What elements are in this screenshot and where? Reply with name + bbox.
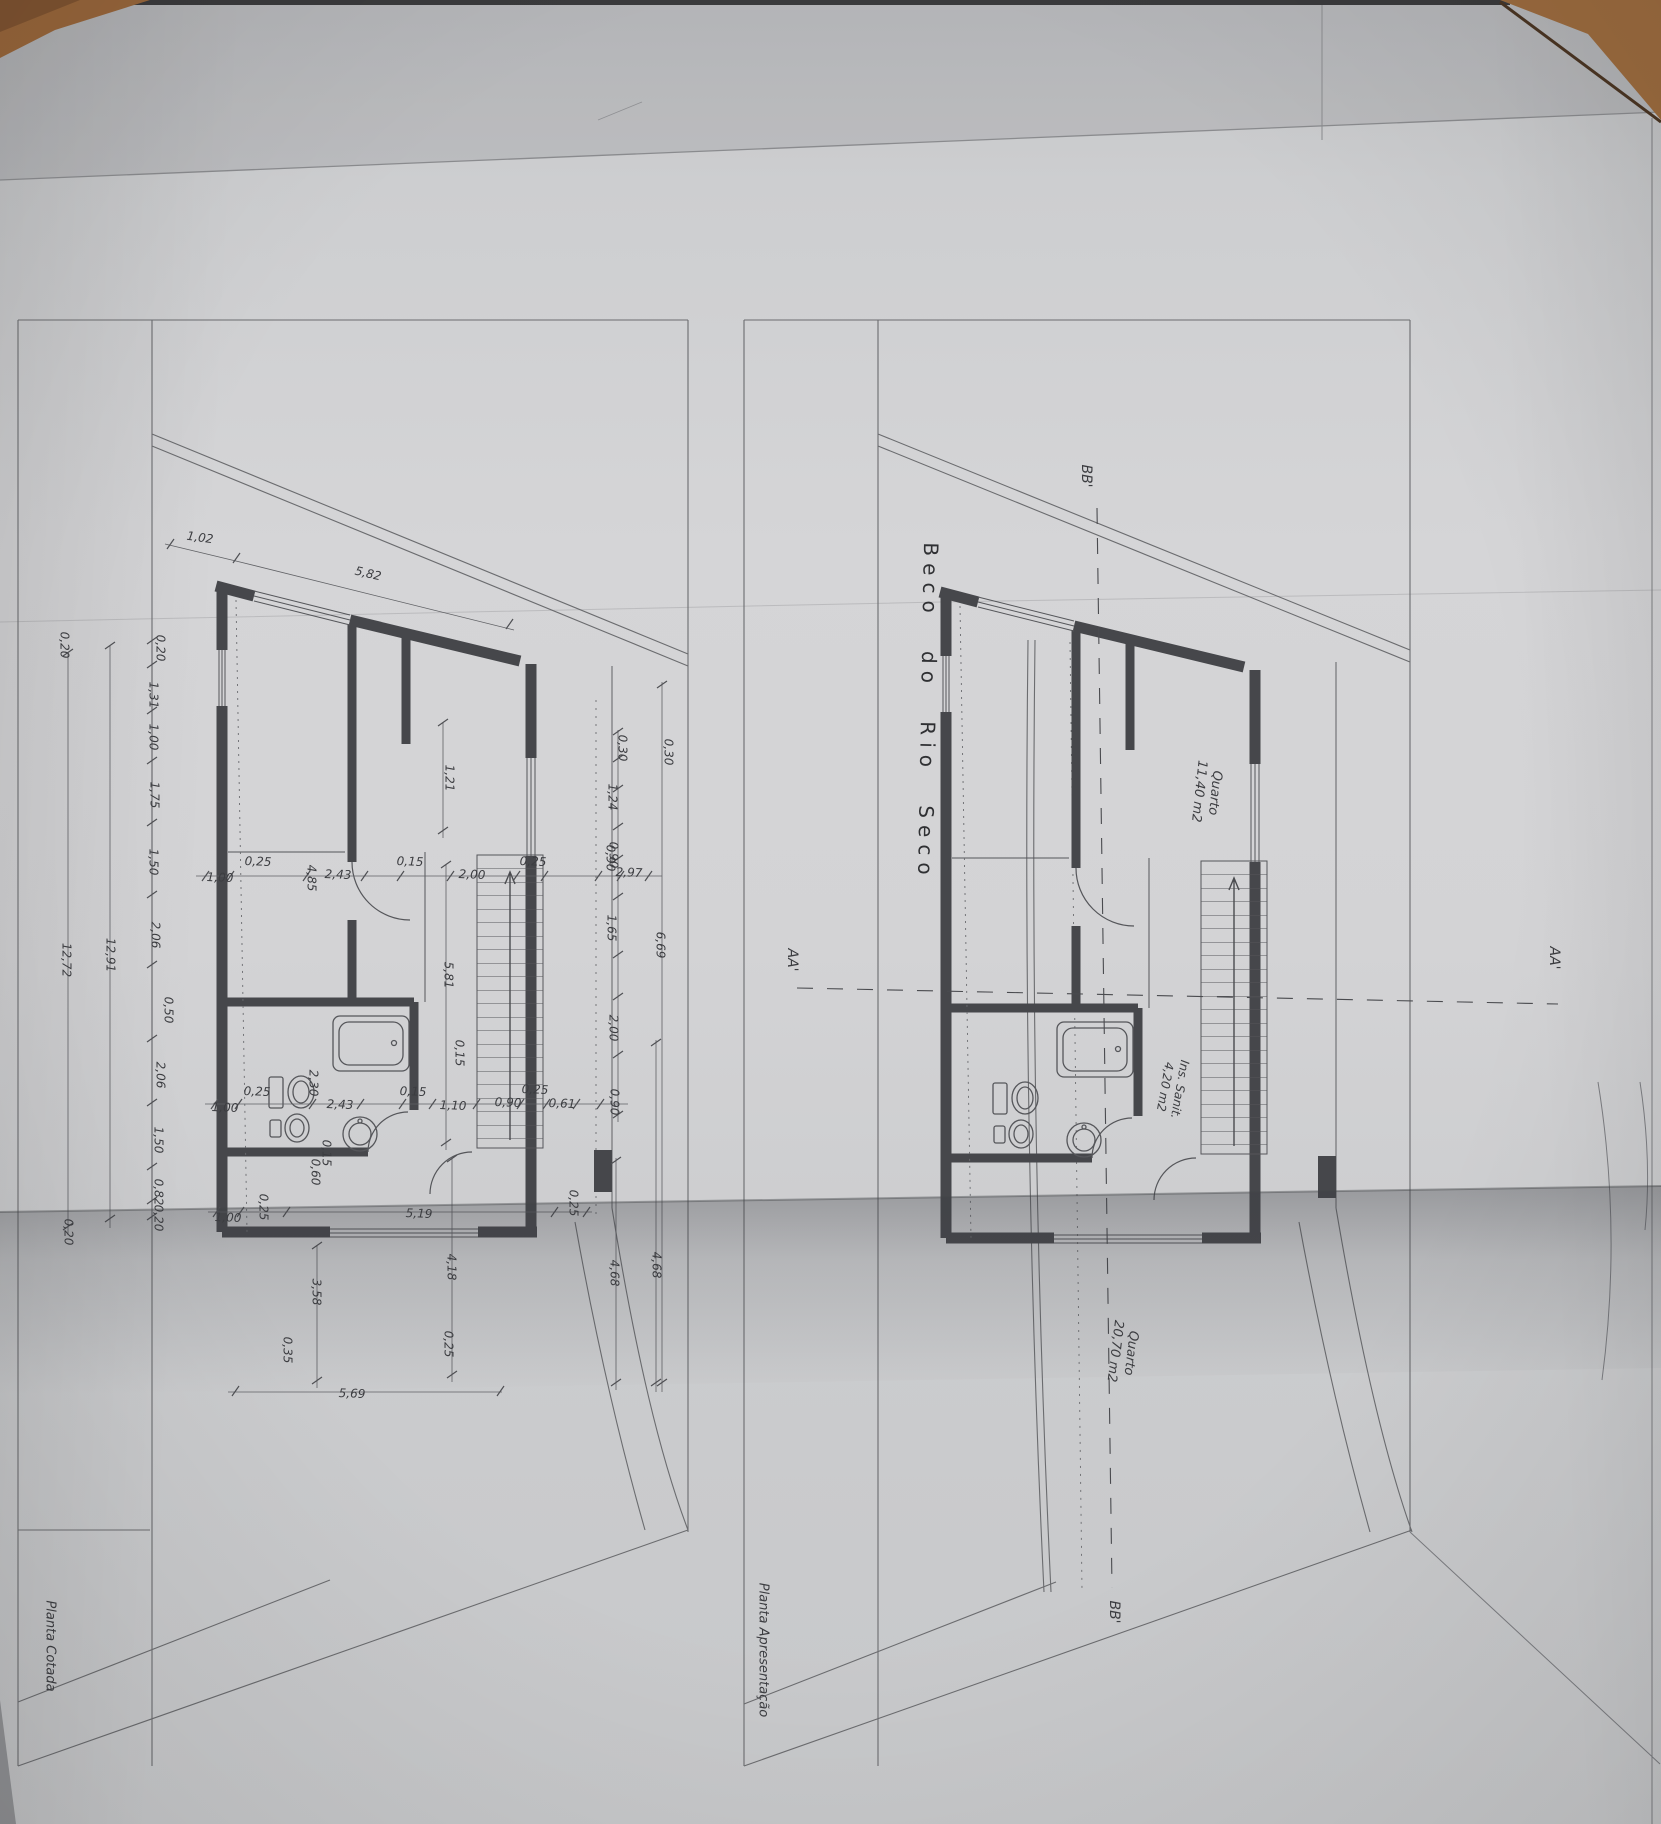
- dimension-label: 0,61: [548, 1096, 575, 1112]
- room-label: Quarto 11,40 m2: [1187, 759, 1226, 824]
- dimension-label: 1,00: [214, 1210, 241, 1226]
- dimension-label: 2,43: [324, 867, 351, 883]
- room-label: Ins. Sanit. 4,20 m2: [1152, 1056, 1192, 1120]
- dimension-label: 1,02: [186, 529, 215, 548]
- dimension-label: 12,72: [59, 943, 74, 977]
- dimension-label: 0,35: [280, 1337, 295, 1364]
- dimension-label: 4,68: [607, 1260, 622, 1287]
- dimension-label: 4,68: [649, 1252, 664, 1279]
- dimension-label: 0,90: [607, 1089, 622, 1116]
- dimension-label: 4,18: [444, 1254, 459, 1281]
- scanned-floor-plan-photo: Beco do Rio Seco Planta Cotada Planta Ap…: [0, 0, 1661, 1824]
- dimension-label: 1,00: [146, 724, 161, 751]
- dimension-label: 0,25: [566, 1190, 581, 1217]
- dimension-label: 12,91: [103, 938, 118, 972]
- dimension-label: 0,15: [319, 1140, 334, 1167]
- dimension-label: 0,90: [606, 842, 621, 869]
- dimension-label: 0,50: [161, 997, 176, 1024]
- dimension-label: 0,30: [661, 739, 676, 766]
- dimension-label: 0,15: [399, 1084, 426, 1100]
- dimension-label: 1,75: [147, 782, 162, 809]
- dimension-label: 0,20: [153, 635, 168, 662]
- section-marker-label: AA': [782, 948, 800, 971]
- dimension-label: 2,43: [326, 1097, 353, 1113]
- dimension-label: 0,20: [57, 632, 72, 659]
- dimension-label: 6,69: [653, 932, 668, 959]
- dimension-label: 1,50: [151, 1127, 166, 1154]
- plan-title-cotada: Planta Cotada: [43, 1600, 58, 1691]
- section-marker-label: BB': [1104, 1600, 1122, 1623]
- dimension-label: 5,19: [405, 1206, 432, 1222]
- dimension-label: 2,00: [606, 1015, 621, 1042]
- section-marker-label: AA': [1544, 946, 1562, 969]
- dimension-label: 5,69: [338, 1386, 365, 1402]
- dimension-label: 0,25: [243, 1084, 270, 1100]
- plan-title-apresentacao: Planta Apresentação: [756, 1583, 771, 1717]
- dimension-label: 0,15: [452, 1040, 467, 1067]
- dimension-label: 0,25: [244, 854, 271, 870]
- dimension-label: 2,30: [306, 1070, 321, 1097]
- dimension-label: 5,82: [353, 564, 382, 585]
- dimension-label: 0,20: [61, 1219, 76, 1246]
- dimension-label: 3,58: [309, 1279, 324, 1306]
- dimension-label: 2,06: [148, 922, 163, 949]
- dimension-label: 0,15: [396, 854, 423, 870]
- dimension-label: 1,21: [442, 765, 457, 792]
- dimension-label: 1,31: [146, 682, 161, 709]
- dimension-label: 1,50: [146, 849, 161, 876]
- dimension-label: 1,65: [604, 915, 619, 942]
- section-marker-label: BB': [1076, 464, 1094, 487]
- room-label: Quarto 20,70 m2: [1102, 1319, 1142, 1385]
- dimension-label: 0,30: [615, 735, 630, 762]
- dimension-label: 0,25: [256, 1194, 271, 1221]
- dimension-label: 4,85: [304, 865, 319, 892]
- street-name-label: Beco do Rio Seco: [913, 542, 943, 882]
- dimension-label: 0,25: [519, 854, 546, 870]
- dimension-label: 5,81: [441, 962, 456, 989]
- dimension-label: 2,06: [153, 1062, 168, 1089]
- dimension-label: 0,20: [151, 1205, 166, 1232]
- dimension-label: 1,00: [206, 870, 233, 886]
- dimension-label: 1,10: [439, 1098, 466, 1114]
- dimension-label: 2,00: [458, 867, 485, 883]
- dimension-label: 0,25: [521, 1082, 548, 1098]
- dimension-label: 0,90: [494, 1095, 521, 1111]
- dimension-label: 0,25: [441, 1331, 456, 1358]
- label-layer: Beco do Rio Seco Planta Cotada Planta Ap…: [0, 0, 1661, 1824]
- dimension-label: 1,00: [211, 1100, 238, 1116]
- dimension-label: 0,82: [151, 1179, 166, 1206]
- dimension-label: 1,24: [605, 784, 620, 811]
